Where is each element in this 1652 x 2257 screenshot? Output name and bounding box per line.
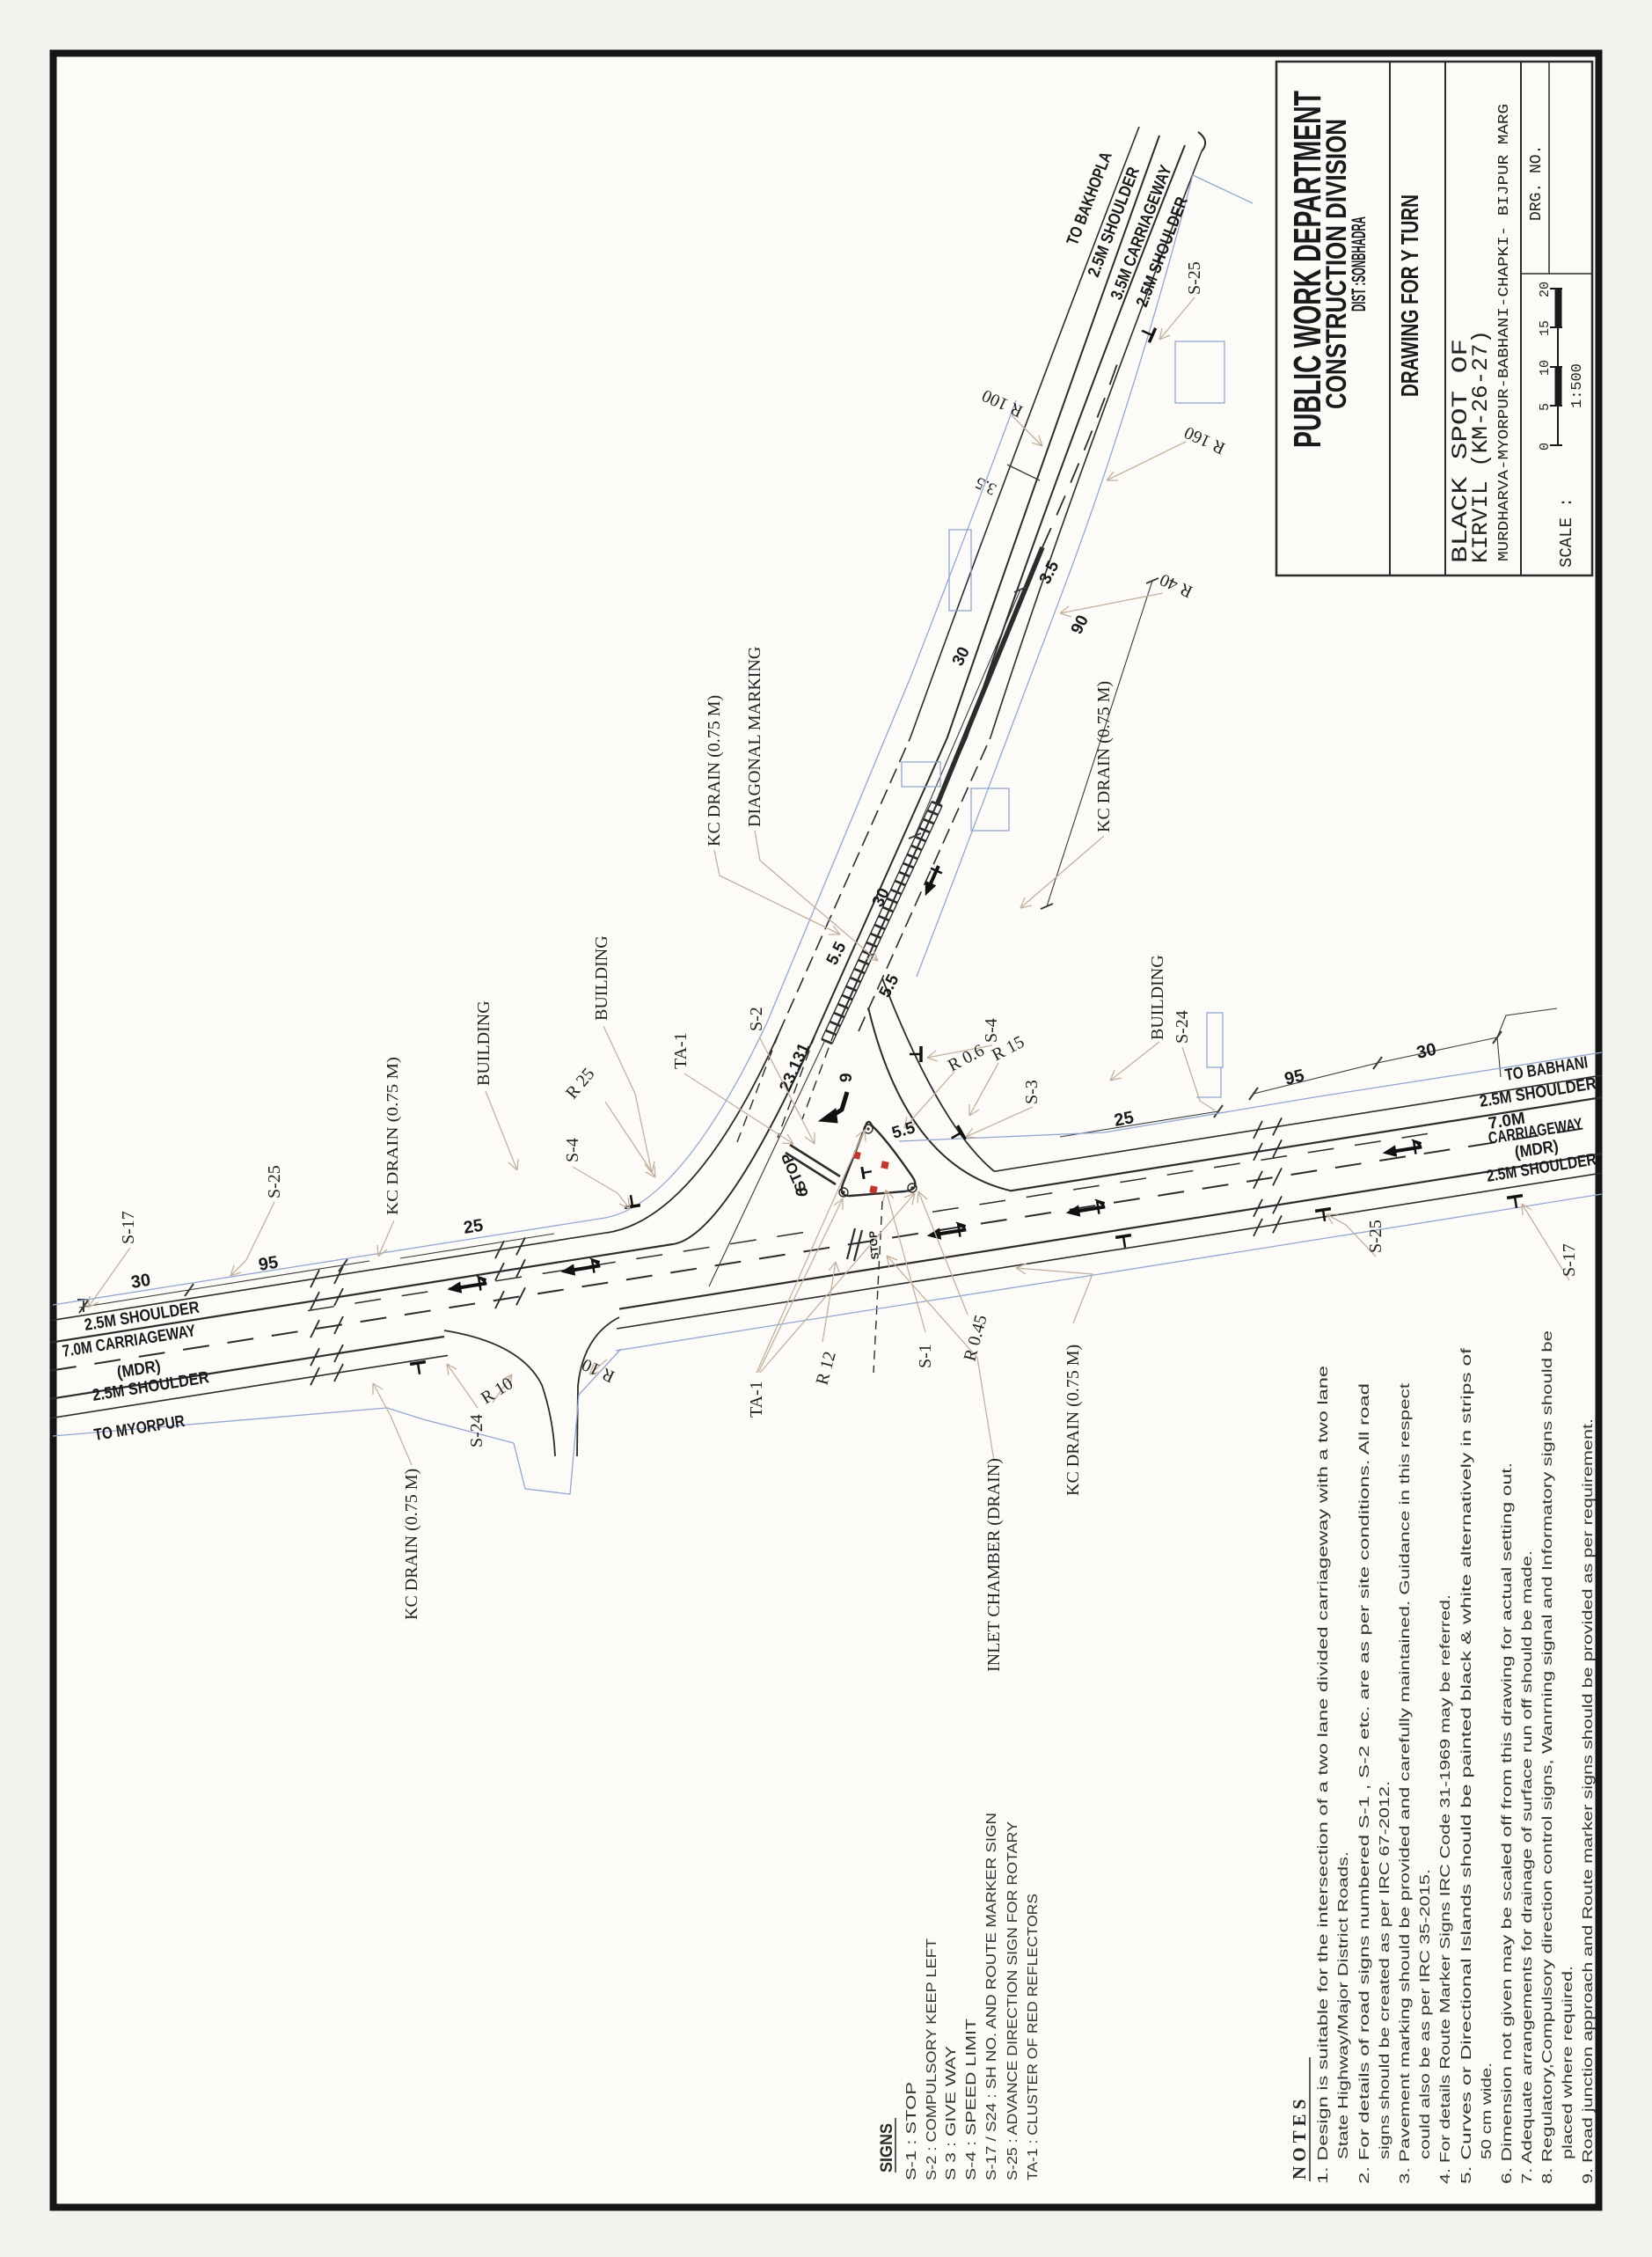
svg-text:10: 10 bbox=[1538, 360, 1553, 376]
svg-text:15: 15 bbox=[1538, 320, 1553, 336]
svg-text:7. Adequate arrangements for d: 7. Adequate arrangements for drainage of… bbox=[1520, 1550, 1535, 2184]
svg-text:S-25: S-25 bbox=[1185, 261, 1204, 295]
svg-text:S-17 / S24 : SH NO. AND ROUTE: S-17 / S24 : SH NO. AND ROUTE MARKER SIG… bbox=[984, 1813, 999, 2180]
svg-text:could also be as per IRC 35-20: could also be as per IRC 35-2015. bbox=[1418, 1869, 1433, 2159]
svg-text:0: 0 bbox=[1538, 443, 1553, 451]
svg-text:S-3: S-3 bbox=[1022, 1080, 1042, 1104]
svg-text:6. Dimension not given may be: 6. Dimension not given may be scaled off… bbox=[1500, 1462, 1515, 2184]
svg-text:placed where required.: placed where required. bbox=[1561, 1966, 1575, 2159]
svg-text:DIST :SONBHADRA: DIST :SONBHADRA bbox=[1348, 216, 1370, 311]
svg-text:S-25: S-25 bbox=[265, 1165, 284, 1198]
svg-text:30: 30 bbox=[129, 1271, 151, 1293]
svg-text:N O T E S: N O T E S bbox=[1289, 2099, 1310, 2180]
svg-text:S-17: S-17 bbox=[119, 1211, 138, 1244]
svg-text:SIGNS: SIGNS bbox=[878, 2123, 896, 2173]
svg-text:S-1: S-1 bbox=[916, 1344, 935, 1368]
svg-text:KC DRAIN (0.75 M): KC DRAIN (0.75 M) bbox=[402, 1469, 421, 1620]
svg-text:BUILDING: BUILDING bbox=[592, 935, 611, 1021]
svg-text:5: 5 bbox=[1538, 403, 1553, 411]
svg-text:KIRVIL (KM-26-27): KIRVIL (KM-26-27) bbox=[1468, 330, 1494, 563]
svg-text:9. Road junction approach and: 9. Road junction approach and Route mark… bbox=[1581, 1418, 1596, 2184]
svg-text:25: 25 bbox=[462, 1216, 484, 1238]
svg-text:DIAGONAL MARKING: DIAGONAL MARKING bbox=[745, 647, 764, 827]
svg-text:6: 6 bbox=[793, 1187, 812, 1197]
svg-text:2. For details of road signs n: 2. For details of road signs numbered S-… bbox=[1357, 1383, 1372, 2184]
svg-text:S-4: S-4 bbox=[563, 1138, 582, 1162]
svg-text:signs should be created as per: signs should be created as per IRC 67-20… bbox=[1378, 1781, 1393, 2159]
svg-text:KC DRAIN (0.75 M): KC DRAIN (0.75 M) bbox=[1064, 1345, 1083, 1496]
svg-text:S-25: S-25 bbox=[1366, 1220, 1385, 1253]
svg-text:S-17: S-17 bbox=[1560, 1243, 1579, 1277]
svg-text:S-2 : COMPULSORY KEEP LEFT: S-2 : COMPULSORY KEEP LEFT bbox=[925, 1938, 939, 2180]
svg-text:TA-1: TA-1 bbox=[747, 1381, 766, 1418]
svg-text:S-4: S-4 bbox=[982, 1018, 1001, 1043]
svg-text:DRAWING FOR Y TURN: DRAWING FOR Y TURN bbox=[1396, 194, 1423, 397]
svg-text:SCALE :: SCALE : bbox=[1557, 497, 1576, 568]
svg-text:S-24: S-24 bbox=[467, 1414, 486, 1447]
svg-text:BUILDING: BUILDING bbox=[1148, 955, 1167, 1040]
svg-text:S-1 : STOP: S-1 : STOP bbox=[904, 2082, 919, 2180]
svg-text:KC DRAIN (0.75 M): KC DRAIN (0.75 M) bbox=[1094, 681, 1114, 832]
svg-text:INLET CHAMBER (DRAIN): INLET CHAMBER (DRAIN) bbox=[984, 1458, 1004, 1672]
svg-text:S-25 : ADVANCE DIRECTION SIGN: S-25 : ADVANCE DIRECTION SIGN FOR ROTARY bbox=[1005, 1821, 1020, 2180]
svg-text:TA-1: TA-1 bbox=[671, 1032, 691, 1069]
svg-text:TA-1 : CLUSTER OF RED REFLECTO: TA-1 : CLUSTER OF RED REFLECTORS bbox=[1026, 1894, 1041, 2180]
svg-text:1. Design is suitable for the: 1. Design is suitable for the intersecti… bbox=[1316, 1366, 1331, 2184]
svg-text:KC DRAIN (0.75 M): KC DRAIN (0.75 M) bbox=[384, 1057, 402, 1215]
svg-text:8. Regulatory,Compulsory direc: 8. Regulatory,Compulsory direction contr… bbox=[1540, 1330, 1555, 2184]
svg-text:4. For details Route Marker Si: 4. For details Route Marker Signs IRC Co… bbox=[1438, 1594, 1453, 2184]
svg-text:30: 30 bbox=[1414, 1040, 1437, 1063]
svg-text:1:500: 1:500 bbox=[1569, 363, 1586, 408]
svg-text:KC DRAIN (0.75 M): KC DRAIN (0.75 M) bbox=[705, 695, 724, 846]
svg-text:S-2: S-2 bbox=[747, 1007, 766, 1031]
svg-text:20: 20 bbox=[1538, 282, 1553, 297]
svg-text:State Highway/Major District R: State Highway/Major District Roads. bbox=[1336, 1851, 1351, 2159]
svg-text:S 3 : GIVE WAY: S 3 : GIVE WAY bbox=[944, 2046, 959, 2180]
svg-text:S-24: S-24 bbox=[1173, 1010, 1192, 1044]
svg-text:BUILDING: BUILDING bbox=[474, 1000, 493, 1086]
svg-text:S-4 : SPEED LIMIT: S-4 : SPEED LIMIT bbox=[964, 2018, 979, 2180]
svg-text:50 cm wide.: 50 cm wide. bbox=[1480, 2063, 1495, 2159]
svg-text:3. Pavement marking should be: 3. Pavement marking should be provided a… bbox=[1398, 1382, 1413, 2184]
svg-text:5. Curves or Directional Islan: 5. Curves or Directional Islands should … bbox=[1459, 1347, 1474, 2184]
svg-text:MURDHARVA-MYORPUR-BABHANI-CHAP: MURDHARVA-MYORPUR-BABHANI-CHAPKI- BIJPUR… bbox=[1496, 104, 1513, 561]
svg-text:9: 9 bbox=[837, 1073, 856, 1082]
svg-text:DRG. NO.: DRG. NO. bbox=[1528, 145, 1546, 221]
